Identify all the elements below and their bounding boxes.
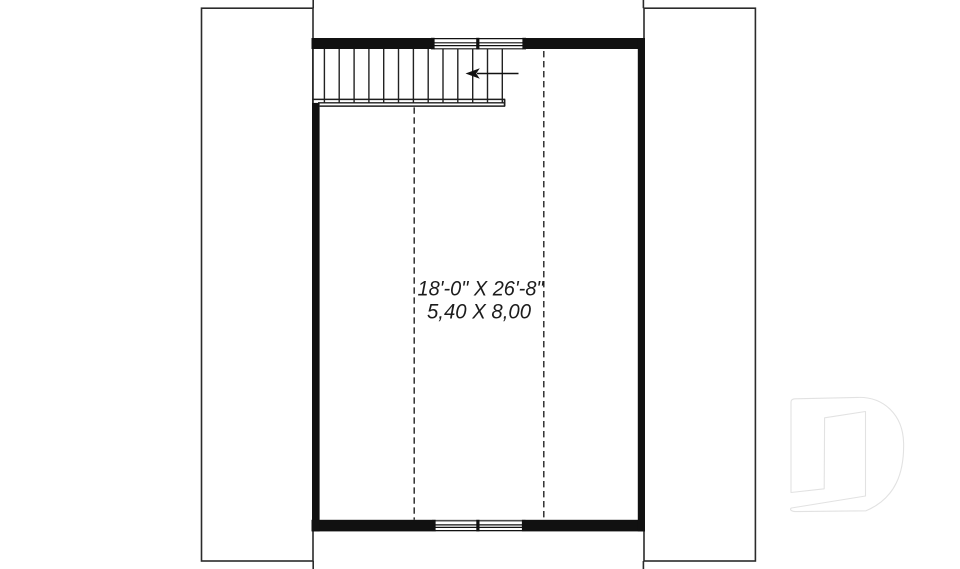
svg-text:18'-0" X 26'-8": 18'-0" X 26'-8" [418,278,545,301]
svg-text:5,40 X 8,00: 5,40 X 8,00 [427,301,531,324]
